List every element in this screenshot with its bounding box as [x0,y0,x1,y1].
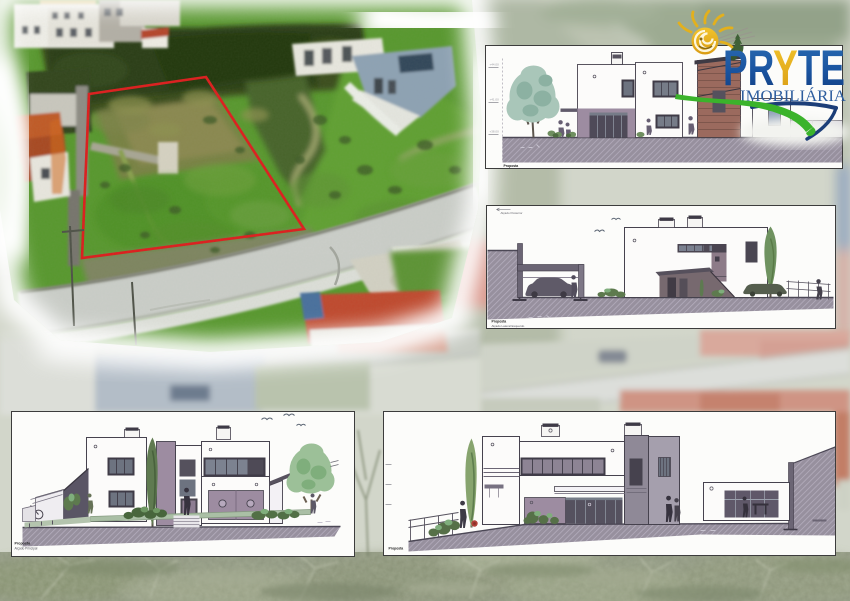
svg-text:+38.00: +38.00 [490,130,500,134]
svg-text:Proposta: Proposta [389,547,404,551]
svg-text:Alçado Posterior: Alçado Posterior [501,211,523,215]
svg-text:+41.00: +41.00 [490,98,500,102]
svg-text:Proposta: Proposta [15,542,32,546]
svg-text:+44.00: +44.00 [490,63,500,67]
svg-text:Proposta: Proposta [504,164,519,168]
svg-text:Alçado Principal: Alçado Principal [15,547,38,551]
svg-text:Proposta: Proposta [492,320,507,324]
svg-text:Alçado Lateral Esquerdo: Alçado Lateral Esquerdo [492,324,525,328]
